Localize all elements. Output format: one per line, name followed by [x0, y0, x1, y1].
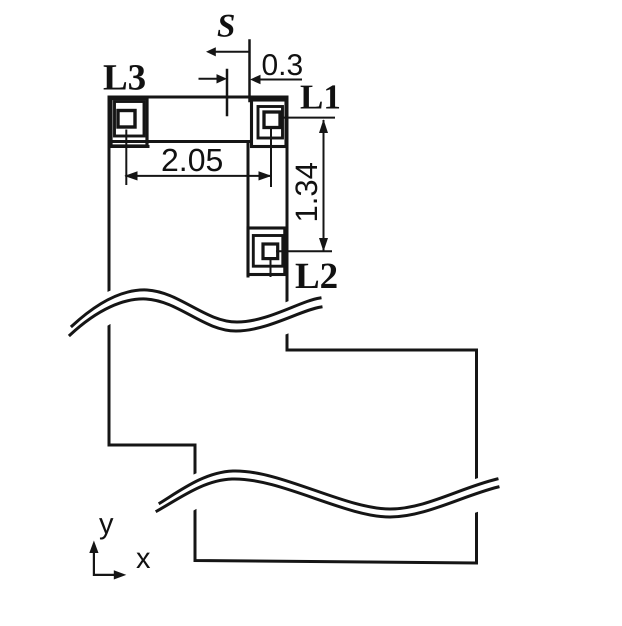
svg-text:S: S: [217, 9, 235, 45]
svg-text:0.3: 0.3: [262, 49, 304, 82]
svg-text:L3: L3: [103, 58, 146, 99]
svg-text:1.34: 1.34: [289, 162, 324, 222]
svg-text:2.05: 2.05: [161, 142, 223, 178]
svg-text:y: y: [99, 509, 114, 541]
svg-text:x: x: [136, 543, 151, 575]
svg-text:L1: L1: [300, 78, 341, 117]
svg-text:L2: L2: [295, 256, 338, 297]
